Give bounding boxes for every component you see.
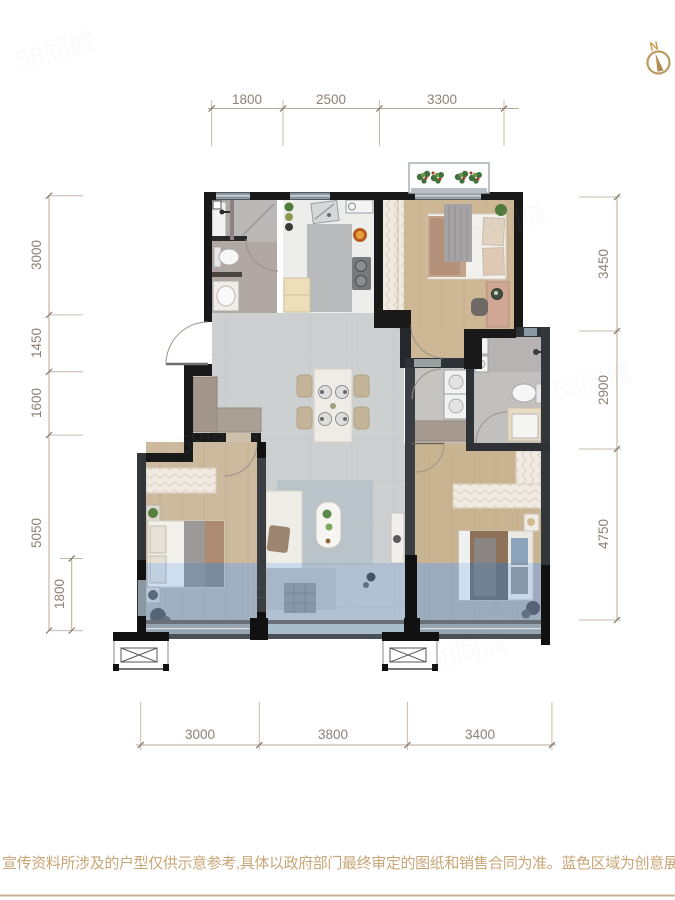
svg-text:1450: 1450	[29, 328, 44, 358]
svg-text:3800: 3800	[318, 727, 348, 742]
svg-text:5050: 5050	[29, 518, 44, 548]
svg-text:宣传资料所涉及的户型仅供示意参考,具体以政府部门最终审定的图: 宣传资料所涉及的户型仅供示意参考,具体以政府部门最终审定的图纸和销售合同为准。蓝…	[2, 854, 675, 872]
svg-text:1800: 1800	[52, 579, 67, 609]
svg-text:2500: 2500	[316, 92, 346, 107]
svg-text:1600: 1600	[29, 388, 44, 418]
svg-text:3400: 3400	[465, 727, 495, 742]
svg-text:1800: 1800	[232, 92, 262, 107]
svg-text:4750: 4750	[596, 519, 611, 549]
svg-text:3450: 3450	[596, 249, 611, 279]
svg-text:3300: 3300	[427, 92, 457, 107]
svg-text:3000: 3000	[185, 727, 215, 742]
svg-text:3000: 3000	[29, 240, 44, 270]
